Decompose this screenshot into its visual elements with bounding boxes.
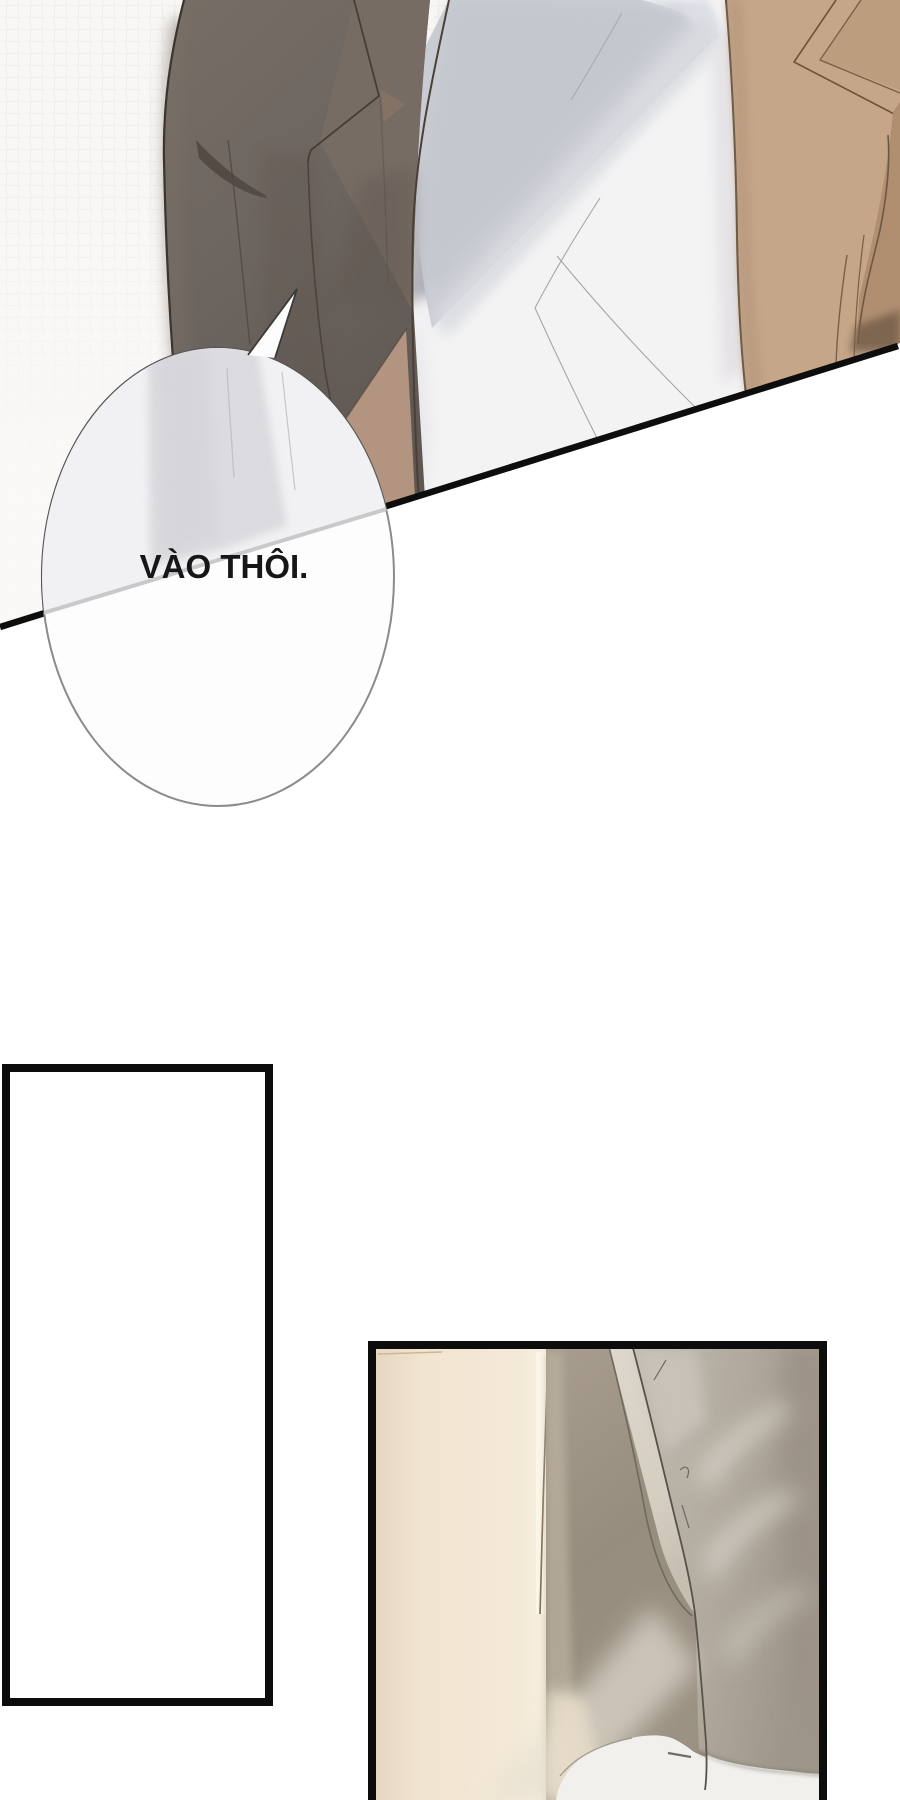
svg-text:VÀO THÔI.: VÀO THÔI. <box>140 547 309 585</box>
